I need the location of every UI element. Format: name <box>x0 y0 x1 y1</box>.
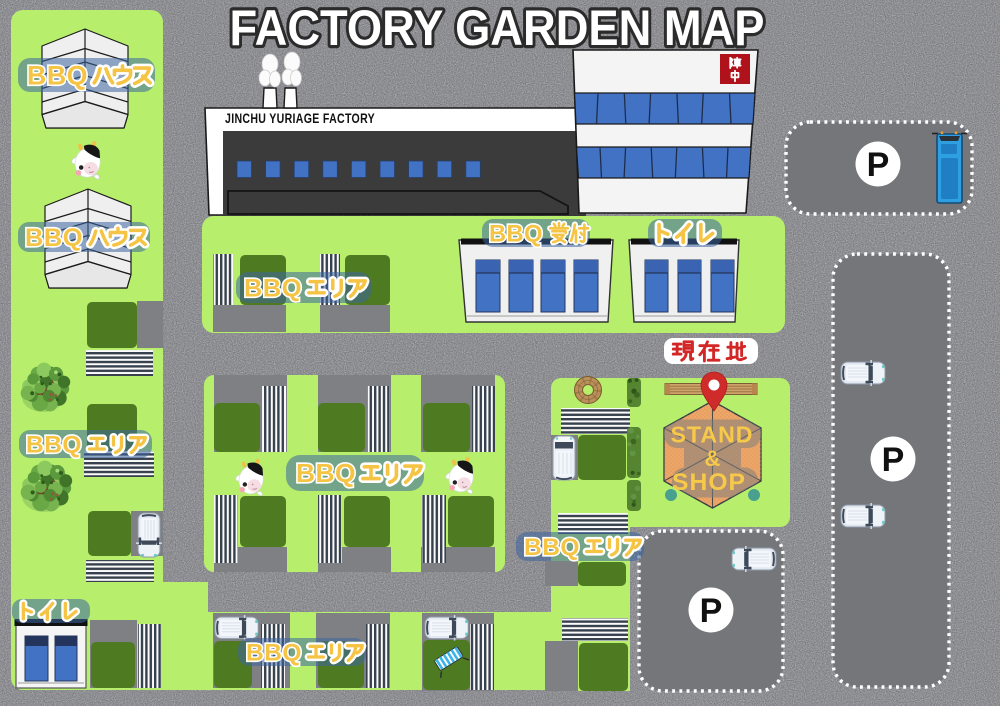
svg-text:BBQ: BBQ <box>27 61 88 91</box>
svg-text:&: & <box>705 446 722 471</box>
svg-text:BBQ: BBQ <box>25 224 83 252</box>
svg-text:BBQ: BBQ <box>489 221 543 248</box>
svg-text:BBQ: BBQ <box>244 274 302 302</box>
svg-text:FACTORY GARDEN MAP: FACTORY GARDEN MAP <box>230 0 765 56</box>
svg-text:STAND: STAND <box>671 422 754 448</box>
svg-text:P: P <box>700 592 723 630</box>
svg-text:BBQ: BBQ <box>296 458 356 488</box>
svg-text:BBQ: BBQ <box>524 534 580 561</box>
svg-text:BBQ: BBQ <box>246 640 302 667</box>
svg-text:P: P <box>882 441 905 479</box>
svg-text:BBQ: BBQ <box>26 432 82 459</box>
svg-text:JINCHU YURIAGE FACTORY: JINCHU YURIAGE FACTORY <box>225 111 375 126</box>
svg-text:SHOP: SHOP <box>672 469 746 496</box>
svg-text:P: P <box>867 146 890 184</box>
